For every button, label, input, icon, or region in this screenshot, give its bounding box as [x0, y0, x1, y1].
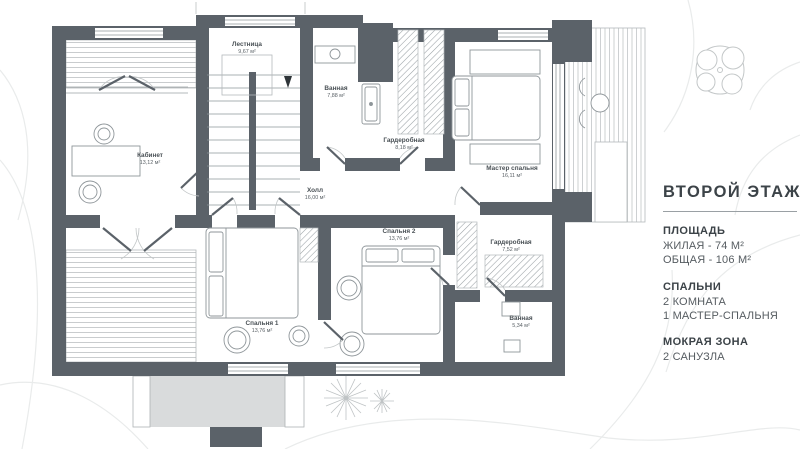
floor-plan-page: Лестница 9,67 м² Кабинет 13,12 м² Ванная… [0, 0, 800, 449]
tree-top-right-icon [696, 46, 744, 94]
room-area-bathroom-bottom: 5,34 м² [512, 323, 530, 329]
terrace-bottom-left [66, 250, 196, 362]
bedrooms-master-line: 1 МАСТЕР-СПАЛЬНЯ [663, 309, 797, 323]
canopy-bottom [133, 376, 304, 447]
window-top-left [95, 28, 163, 38]
panel-divider [663, 211, 797, 212]
room-area-wardrobe-right: 7,52 м² [502, 247, 520, 253]
section-heading-area: ПЛОЩАДЬ [663, 225, 797, 237]
bedrooms-rooms-line: 2 КОМНАТА [663, 295, 797, 309]
tree-bottom-icon [324, 376, 394, 420]
terrace-top-left [66, 40, 196, 93]
room-area-office: 13,12 м² [140, 160, 161, 166]
room-label-bedroom2: Спальня 2 [383, 228, 416, 235]
section-heading-wet-zone: МОКРАЯ ЗОНА [663, 336, 797, 348]
room-area-master: 16,11 м² [502, 173, 522, 179]
room-area-bedroom2: 13,76 м² [389, 236, 410, 242]
room-label-wardrobe-right: Гардеробная [490, 238, 532, 246]
window-bottom-2 [336, 364, 420, 374]
window-bottom-1 [228, 364, 288, 374]
room-label-stairs: Лестница [232, 41, 262, 48]
room-area-hall: 16,00 м² [305, 195, 326, 201]
dimension-ticks [196, 2, 305, 14]
panel-section-area: ПЛОЩАДЬ ЖИЛАЯ - 74 М² ОБЩАЯ - 106 М² [663, 225, 797, 268]
area-total-line: ОБЩАЯ - 106 М² [663, 253, 797, 267]
info-panel: ВТОРОЙ ЭТАЖ ПЛОЩАДЬ ЖИЛАЯ - 74 М² ОБЩАЯ … [663, 183, 797, 377]
panel-title: ВТОРОЙ ЭТАЖ [663, 183, 797, 202]
panel-section-bedrooms: СПАЛЬНИ 2 КОМНАТА 1 МАСТЕР-СПАЛЬНЯ [663, 281, 797, 324]
area-living-line: ЖИЛАЯ - 74 М² [663, 239, 797, 253]
room-label-wardrobe-top: Гардеробная [383, 136, 425, 144]
room-area-bedroom1: 13,76 м² [252, 328, 273, 334]
window-balcony-door [553, 64, 564, 189]
room-label-master: Мастер спальня [486, 165, 538, 172]
room-area-wardrobe-top: 8,18 м² [395, 145, 413, 151]
room-label-hall: Холл [307, 187, 323, 194]
window-master [498, 30, 548, 40]
room-label-bathroom-top: Ванная [324, 85, 347, 92]
room-label-bathroom-bottom: Ванная [509, 315, 532, 322]
entry-step [210, 427, 262, 447]
window-stairs [225, 17, 295, 26]
room-area-stairs: 9,67 м² [238, 49, 256, 55]
room-label-office: Кабинет [137, 151, 163, 159]
room-label-bedroom1: Спальня 1 [246, 320, 279, 327]
panel-section-wet-zone: МОКРАЯ ЗОНА 2 САНУЗЛА [663, 336, 797, 364]
wet-zone-line: 2 САНУЗЛА [663, 350, 797, 364]
room-area-bathroom-top: 7,88 м² [327, 93, 345, 99]
section-heading-bedrooms: СПАЛЬНИ [663, 281, 797, 293]
